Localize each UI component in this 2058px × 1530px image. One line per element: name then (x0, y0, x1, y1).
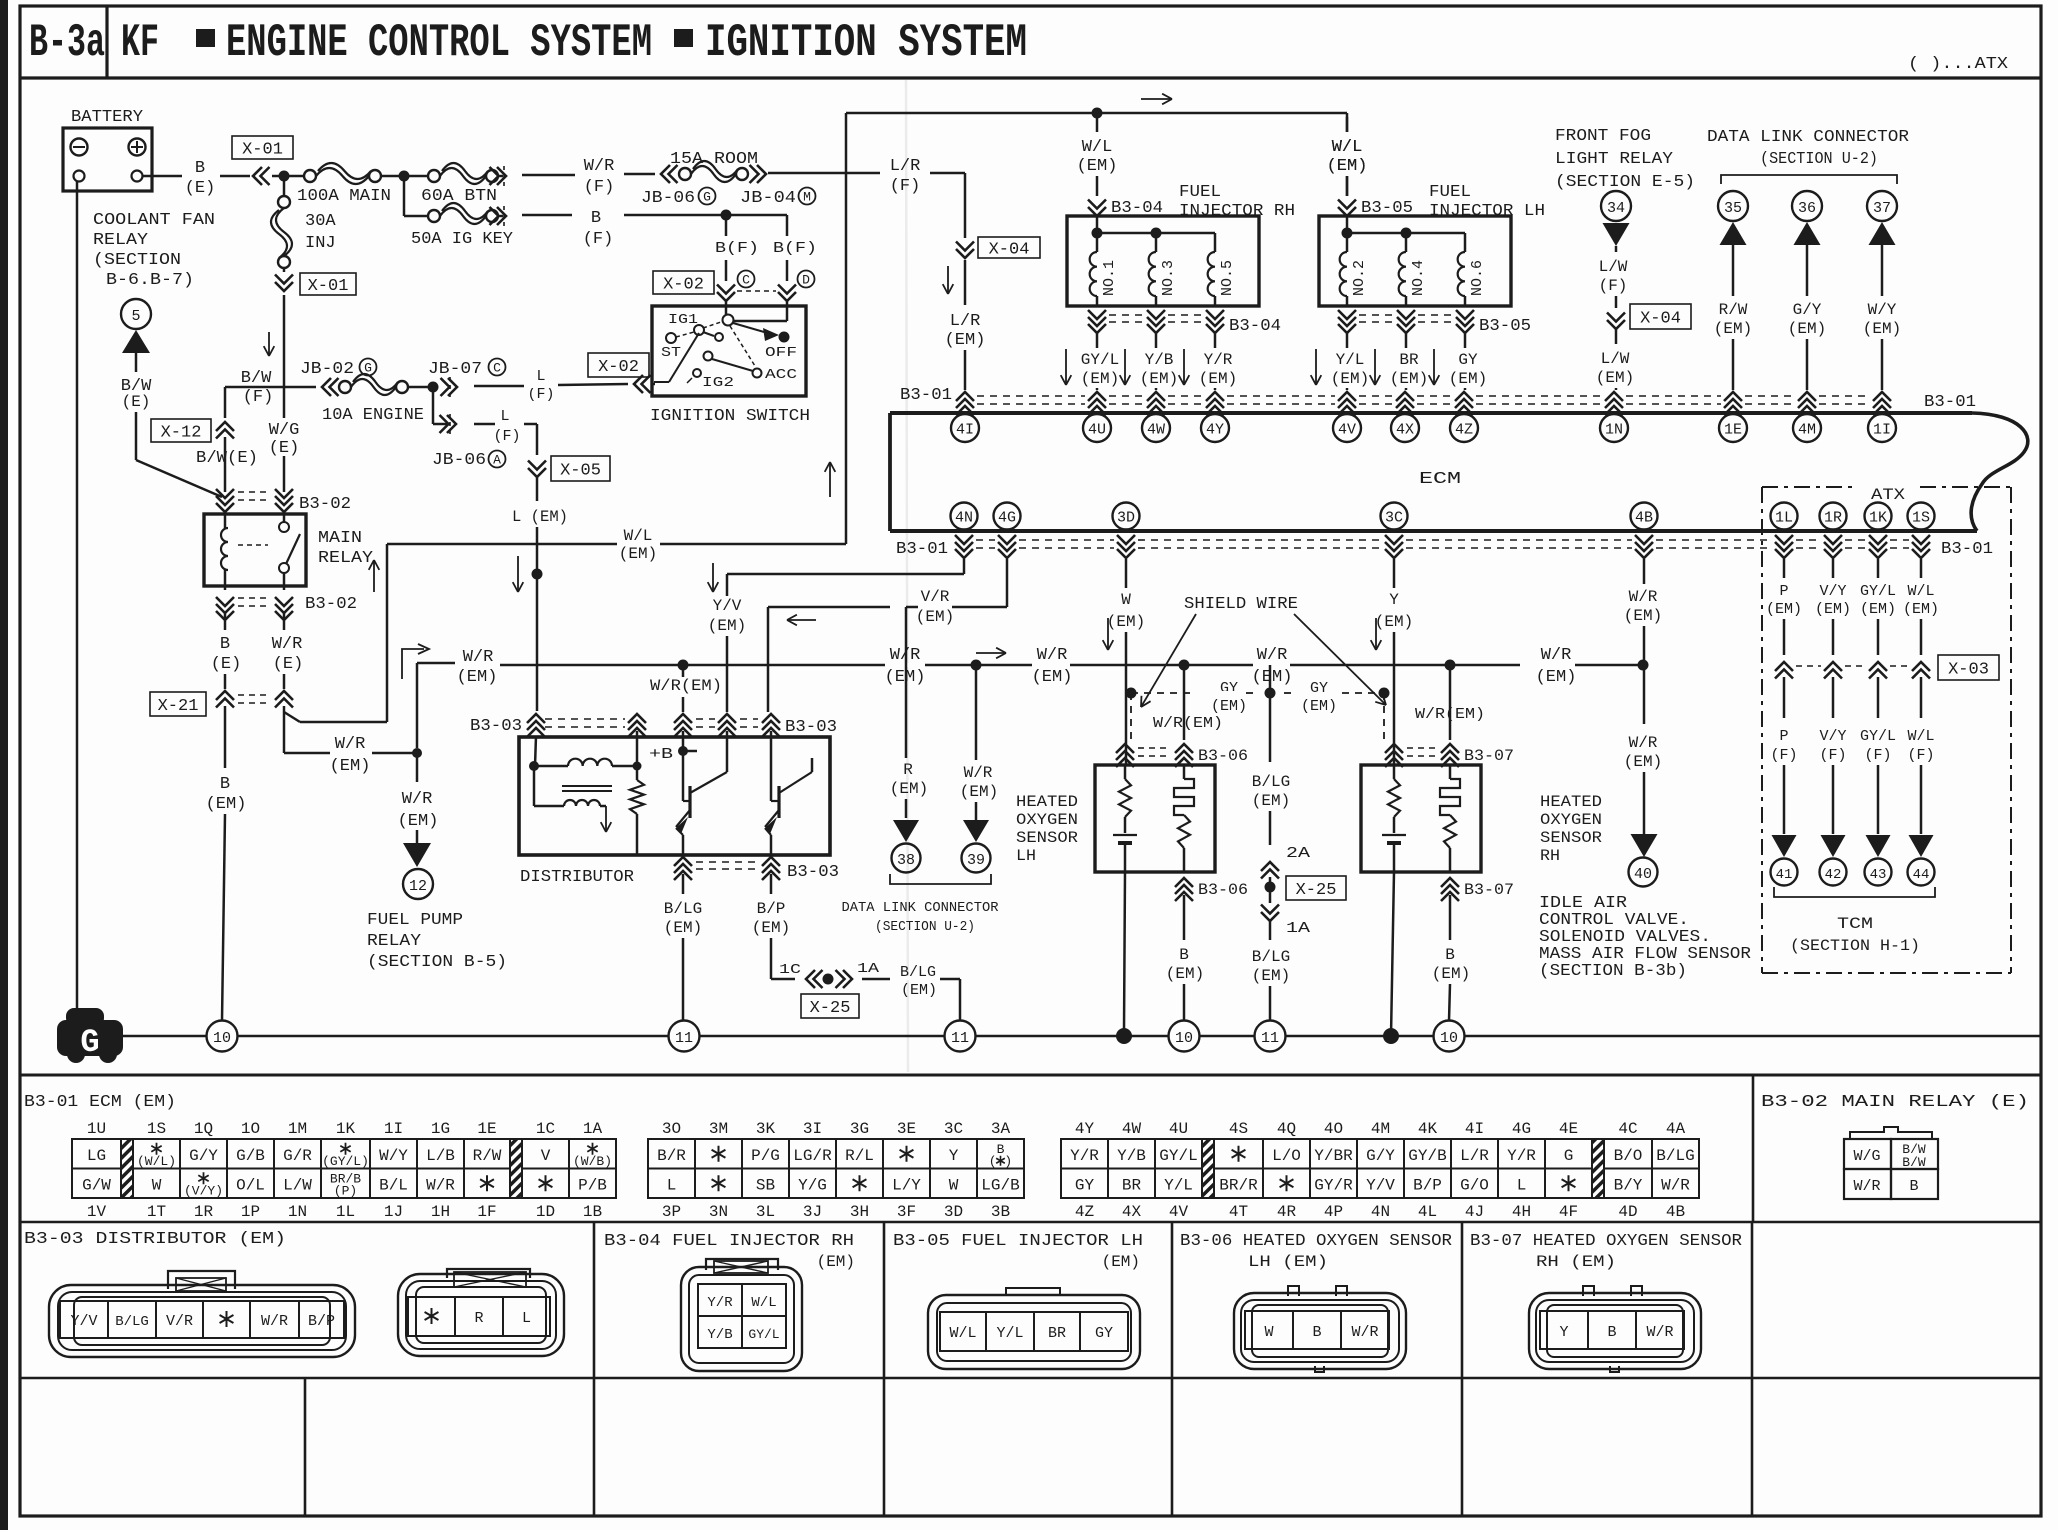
svg-text:B/LG: B/LG (1252, 773, 1290, 791)
svg-text:4E: 4E (1559, 1120, 1578, 1138)
svg-text:B/LG: B/LG (1656, 1147, 1694, 1165)
svg-text:1N: 1N (288, 1203, 307, 1221)
svg-text:3E: 3E (897, 1120, 916, 1138)
svg-text:B3-01: B3-01 (896, 540, 948, 559)
svg-text:(F): (F) (243, 388, 274, 407)
svg-text:(EM): (EM) (1252, 967, 1290, 985)
svg-text:3A: 3A (991, 1120, 1011, 1138)
svg-text:O/L: O/L (236, 1176, 265, 1194)
svg-text:OXYGEN: OXYGEN (1016, 811, 1078, 829)
svg-text:NO.2: NO.2 (1351, 260, 1368, 296)
svg-text:3H: 3H (850, 1203, 869, 1221)
svg-text:Y/V: Y/V (713, 597, 742, 615)
svg-text:B/P: B/P (757, 900, 786, 918)
svg-text:1F: 1F (477, 1203, 496, 1221)
svg-text:B-3a: B-3a (29, 17, 105, 69)
svg-text:DATA LINK CONNECTOR: DATA LINK CONNECTOR (842, 900, 1000, 916)
svg-text:1L: 1L (336, 1203, 355, 1221)
svg-text:SENSOR: SENSOR (1016, 829, 1078, 847)
svg-text:(EM): (EM) (206, 795, 247, 814)
svg-text:(EM): (EM) (960, 783, 998, 801)
svg-text:B3-04: B3-04 (1229, 317, 1281, 336)
svg-text:W/R: W/R (1541, 646, 1572, 665)
svg-text:ST: ST (661, 345, 681, 361)
svg-text:1D: 1D (536, 1203, 555, 1221)
svg-text:B3-06 HEATED OXYGEN SENSOR: B3-06 HEATED OXYGEN SENSOR (1180, 1232, 1452, 1251)
svg-text:NO.5: NO.5 (1219, 260, 1236, 296)
svg-text:L: L (522, 1310, 531, 1327)
svg-text:Y/L: Y/L (1336, 351, 1365, 369)
svg-text:GY/B: GY/B (1408, 1147, 1446, 1165)
svg-text:L/W: L/W (1601, 350, 1630, 368)
svg-text:1Q: 1Q (194, 1120, 213, 1138)
svg-text:1B: 1B (583, 1203, 602, 1221)
svg-text:GY/R: GY/R (1314, 1176, 1353, 1194)
svg-text:(EM): (EM) (1102, 1253, 1140, 1271)
svg-text:1O: 1O (241, 1120, 260, 1138)
svg-text:43: 43 (1870, 867, 1887, 883)
svg-text:3P: 3P (662, 1203, 681, 1221)
svg-text:G/Y: G/Y (189, 1147, 218, 1165)
svg-text:Y/B: Y/B (1145, 351, 1174, 369)
svg-text:4Z: 4Z (1455, 421, 1473, 438)
svg-text:4R: 4R (1277, 1203, 1297, 1221)
svg-text:W/R: W/R (402, 790, 433, 809)
svg-text:(SECTION B-3b): (SECTION B-3b) (1539, 962, 1687, 981)
svg-text:4V: 4V (1169, 1203, 1189, 1221)
svg-text:B3-01: B3-01 (900, 386, 952, 405)
svg-text:X-04: X-04 (989, 241, 1030, 260)
svg-text:W: W (152, 1176, 162, 1194)
svg-text:1I: 1I (1873, 421, 1891, 438)
svg-text:3M: 3M (709, 1120, 728, 1138)
svg-text:B3-02: B3-02 (305, 595, 357, 614)
svg-text:LG/R: LG/R (793, 1147, 832, 1165)
svg-text:B3-02: B3-02 (299, 495, 351, 514)
svg-text:(E): (E) (122, 393, 151, 411)
svg-text:11: 11 (1261, 1030, 1279, 1047)
svg-text:4O: 4O (1324, 1120, 1343, 1138)
svg-text:34: 34 (1607, 200, 1625, 217)
svg-text:DATA LINK CONNECTOR: DATA LINK CONNECTOR (1707, 128, 1909, 147)
svg-text:JB-04: JB-04 (740, 189, 796, 208)
svg-text:4C: 4C (1618, 1120, 1637, 1138)
svg-text:Y/B: Y/B (707, 1327, 732, 1343)
svg-text:10: 10 (213, 1030, 231, 1047)
svg-text:(EM): (EM) (1331, 370, 1369, 388)
svg-text:FUEL PUMP: FUEL PUMP (367, 911, 463, 930)
svg-text:W/R: W/R (1629, 588, 1658, 606)
svg-text:R: R (474, 1310, 483, 1327)
svg-text:G: G (1564, 1147, 1574, 1165)
svg-text:W/L: W/L (624, 527, 653, 545)
svg-text:4I: 4I (956, 421, 974, 438)
svg-text:L: L (667, 1176, 677, 1194)
svg-text:(P): (P) (334, 1183, 357, 1198)
svg-text:W/R: W/R (964, 764, 993, 782)
svg-text:X-05: X-05 (560, 462, 601, 481)
svg-text:W/R: W/R (1351, 1324, 1378, 1341)
svg-text:P: P (1779, 728, 1788, 745)
svg-text:GY/L: GY/L (1860, 583, 1896, 600)
svg-text:(EM): (EM) (1432, 965, 1470, 983)
svg-text:Y/G: Y/G (798, 1176, 827, 1194)
svg-text:(EM): (EM) (1301, 698, 1337, 715)
svg-text:B3-03: B3-03 (787, 863, 839, 882)
svg-text:W/R: W/R (584, 157, 615, 176)
svg-text:W/R: W/R (463, 648, 494, 667)
svg-text:10A ENGINE: 10A ENGINE (322, 406, 424, 425)
svg-text:(EM): (EM) (1107, 613, 1145, 631)
svg-text:RELAY: RELAY (367, 932, 421, 951)
svg-text:3K: 3K (756, 1120, 776, 1138)
svg-text:1E: 1E (477, 1120, 496, 1138)
svg-text:W/R: W/R (1853, 1178, 1880, 1195)
svg-text:50A IG KEY: 50A IG KEY (411, 230, 513, 249)
svg-text:W/L: W/L (1907, 728, 1934, 745)
svg-text:( )...ATX: ( )...ATX (1908, 55, 2008, 74)
svg-text:(EM): (EM) (1252, 792, 1290, 810)
svg-text:(F): (F) (1819, 747, 1846, 764)
svg-text:B/P: B/P (308, 1313, 335, 1330)
svg-text:RELAY: RELAY (93, 231, 148, 250)
svg-text:C: C (493, 361, 501, 376)
svg-text:B/L: B/L (379, 1176, 408, 1194)
svg-text:B3-07: B3-07 (1464, 747, 1514, 765)
svg-text:4D: 4D (1618, 1203, 1637, 1221)
svg-text:4G: 4G (1512, 1120, 1531, 1138)
svg-text:W/L: W/L (1907, 583, 1934, 600)
svg-text:4W: 4W (1122, 1120, 1142, 1138)
svg-text:L (EM): L (EM) (512, 508, 568, 526)
svg-text:W/R: W/R (335, 735, 366, 754)
svg-text:(EM): (EM) (330, 757, 371, 776)
svg-text:(EM): (EM) (1860, 601, 1896, 618)
svg-text:W/R: W/R (1646, 1324, 1673, 1341)
svg-text:(EM): (EM) (1327, 157, 1368, 176)
svg-text:4U: 4U (1169, 1120, 1188, 1138)
svg-text:W/R: W/R (272, 635, 303, 654)
svg-text:GY: GY (1075, 1176, 1095, 1194)
svg-text:GY: GY (1310, 680, 1328, 697)
svg-text:(EM): (EM) (457, 668, 498, 687)
svg-text:GY: GY (1095, 1325, 1113, 1342)
svg-text:A: A (493, 453, 501, 468)
svg-text:1J: 1J (384, 1203, 403, 1221)
svg-text:3N: 3N (709, 1203, 728, 1221)
svg-text:3G: 3G (850, 1120, 869, 1138)
svg-text:NO.1: NO.1 (1101, 260, 1118, 296)
svg-text:4M: 4M (1798, 421, 1816, 438)
svg-text:4I: 4I (1465, 1120, 1484, 1138)
svg-text:B/O: B/O (1614, 1147, 1643, 1165)
svg-text:(EM): (EM) (708, 617, 746, 635)
svg-text:RH: RH (1540, 847, 1560, 865)
svg-text:GY/L: GY/L (1081, 351, 1119, 369)
svg-text:X-03: X-03 (1948, 661, 1989, 680)
svg-text:L/R: L/R (890, 157, 921, 176)
svg-text:W/R: W/R (261, 1313, 288, 1330)
svg-text:1A: 1A (857, 961, 880, 977)
svg-text:G/Y: G/Y (1366, 1147, 1395, 1165)
svg-text:G/R: G/R (283, 1147, 312, 1165)
svg-text:Y/R: Y/R (1070, 1147, 1099, 1165)
svg-text:B3-06: B3-06 (1198, 747, 1248, 765)
svg-text:KF: KF (121, 17, 159, 69)
svg-text:4X: 4X (1122, 1203, 1142, 1221)
svg-text:(E): (E) (269, 439, 300, 458)
svg-text:B: B (1909, 1178, 1918, 1195)
svg-text:Y: Y (1559, 1324, 1568, 1341)
svg-text:W/G: W/G (269, 421, 300, 440)
svg-text:Y/V: Y/V (1366, 1176, 1395, 1194)
svg-text:(W/B): (W/B) (573, 1154, 612, 1169)
svg-text:X-25: X-25 (1296, 881, 1337, 900)
svg-text:B(F): B(F) (715, 240, 759, 257)
svg-text:B3-06: B3-06 (1198, 881, 1248, 899)
svg-text:W: W (1121, 591, 1131, 609)
svg-text:(EM): (EM) (1815, 601, 1851, 618)
svg-text:(F): (F) (583, 230, 614, 249)
svg-text:W: W (949, 1176, 959, 1194)
svg-text:INJ: INJ (305, 234, 336, 253)
svg-text:Y/BR: Y/BR (1314, 1147, 1353, 1165)
svg-text:X-12: X-12 (161, 424, 202, 443)
svg-text:B3-01: B3-01 (1941, 540, 1993, 559)
svg-text:IG2: IG2 (702, 375, 734, 391)
svg-text:P/G: P/G (751, 1147, 780, 1165)
svg-text:37: 37 (1873, 200, 1891, 217)
svg-text:B3-01: B3-01 (1924, 393, 1976, 412)
svg-text:V/Y: V/Y (1819, 583, 1846, 600)
svg-text:4J: 4J (1465, 1203, 1484, 1221)
svg-text:B: B (1607, 1324, 1616, 1341)
svg-text:W/G: W/G (1853, 1148, 1880, 1165)
svg-text:Y: Y (949, 1147, 959, 1165)
svg-text:RH (EM): RH (EM) (1536, 1253, 1616, 1271)
svg-text:(EM): (EM) (890, 780, 928, 798)
svg-text:4Y: 4Y (1206, 421, 1224, 438)
svg-text:B: B (195, 159, 205, 178)
svg-text:LH: LH (1016, 847, 1036, 865)
svg-text:(EM): (EM) (1449, 370, 1487, 388)
svg-text:X-02: X-02 (663, 276, 704, 295)
svg-text:INJECTOR RH: INJECTOR RH (1179, 202, 1295, 221)
svg-text:COOLANT FAN: COOLANT FAN (93, 211, 215, 230)
svg-text:11: 11 (951, 1030, 969, 1047)
svg-text:D: D (802, 273, 810, 288)
svg-text:4B: 4B (1635, 509, 1653, 526)
svg-text:LG/B: LG/B (981, 1176, 1019, 1194)
svg-text:B: B (220, 775, 230, 794)
svg-text:W/R: W/R (1661, 1176, 1690, 1194)
svg-text:B/LG: B/LG (115, 1314, 149, 1330)
svg-text:1K: 1K (1869, 509, 1887, 526)
svg-text:BR: BR (1122, 1176, 1142, 1194)
svg-text:IGNITION SWITCH: IGNITION SWITCH (650, 407, 810, 426)
svg-text:ATX: ATX (1871, 486, 1905, 504)
svg-text:39: 39 (967, 852, 985, 869)
svg-text:L: L (500, 408, 509, 425)
svg-text:(EM): (EM) (1140, 370, 1178, 388)
svg-text:(EM): (EM) (1252, 668, 1293, 687)
svg-text:1U: 1U (87, 1120, 106, 1138)
svg-text:B/LG: B/LG (1252, 948, 1290, 966)
svg-text:(EM): (EM) (1077, 157, 1118, 176)
svg-text:W/R: W/R (426, 1176, 455, 1194)
svg-text:W/L: W/L (751, 1295, 776, 1311)
svg-text:(SECTION U-2): (SECTION U-2) (1760, 150, 1878, 169)
svg-text:R/W: R/W (473, 1147, 502, 1165)
svg-text:R/W: R/W (1719, 301, 1748, 319)
svg-text:B: B (220, 635, 230, 654)
svg-text:B3-04 FUEL INJECTOR RH: B3-04 FUEL INJECTOR RH (604, 1232, 854, 1251)
svg-text:FUEL: FUEL (1179, 183, 1221, 202)
svg-text:(E): (E) (211, 655, 242, 674)
svg-text:R: R (903, 761, 913, 779)
svg-text:3F: 3F (897, 1203, 916, 1221)
svg-text:GY/L: GY/L (748, 1327, 779, 1342)
svg-text:Y/R: Y/R (1204, 351, 1233, 369)
svg-text:B/W: B/W (1902, 1155, 1926, 1170)
svg-text:W/Y: W/Y (379, 1147, 408, 1165)
svg-text:4X: 4X (1396, 421, 1414, 438)
svg-text:(F): (F) (1907, 747, 1934, 764)
svg-text:L/W: L/W (283, 1176, 312, 1194)
svg-text:(E): (E) (185, 179, 216, 198)
svg-text:LH (EM): LH (EM) (1248, 1253, 1328, 1271)
svg-text:3B: 3B (991, 1203, 1010, 1221)
svg-text:(EM): (EM) (1766, 601, 1802, 618)
svg-text:(EM): (EM) (916, 608, 954, 626)
svg-text:(F): (F) (890, 177, 921, 196)
svg-text:(EM): (EM) (817, 1253, 855, 1271)
svg-text:X-01: X-01 (242, 141, 283, 160)
svg-text:L: L (536, 368, 545, 385)
svg-text:Y/R: Y/R (1507, 1147, 1536, 1165)
svg-text:41: 41 (1776, 867, 1793, 883)
svg-text:W/L: W/L (1082, 138, 1113, 157)
svg-text:4Z: 4Z (1075, 1203, 1095, 1221)
svg-text:LIGHT RELAY: LIGHT RELAY (1555, 150, 1673, 169)
svg-text:W/R: W/R (1629, 734, 1658, 752)
svg-text:4H: 4H (1512, 1203, 1531, 1221)
svg-text:1L: 1L (1775, 509, 1793, 526)
svg-text:OXYGEN: OXYGEN (1540, 811, 1602, 829)
svg-text:L/O: L/O (1272, 1147, 1301, 1165)
svg-text:3D: 3D (1117, 509, 1135, 526)
svg-text:B/W: B/W (241, 369, 272, 388)
svg-text:4S: 4S (1229, 1120, 1248, 1138)
svg-text:L/Y: L/Y (892, 1176, 921, 1194)
svg-text:1G: 1G (431, 1120, 450, 1138)
svg-text:1N: 1N (1605, 421, 1623, 438)
svg-text:JB-06: JB-06 (641, 189, 695, 208)
svg-text:TCM: TCM (1837, 915, 1873, 933)
svg-text:IGNITION SYSTEM: IGNITION SYSTEM (705, 17, 1027, 69)
svg-text:35: 35 (1724, 200, 1742, 217)
svg-text:B/Y: B/Y (1614, 1176, 1643, 1194)
svg-text:1M: 1M (288, 1120, 307, 1138)
svg-text:3I: 3I (803, 1120, 822, 1138)
svg-text:G/O: G/O (1460, 1176, 1489, 1194)
svg-text:4T: 4T (1229, 1203, 1248, 1221)
svg-text:INJECTOR LH: INJECTOR LH (1429, 202, 1545, 221)
svg-text:(SECTION: (SECTION (93, 251, 181, 270)
svg-text:W/R: W/R (1257, 646, 1288, 665)
svg-text:1S: 1S (1912, 509, 1930, 526)
svg-text:JB-02: JB-02 (300, 360, 354, 379)
svg-text:4P: 4P (1324, 1203, 1343, 1221)
svg-text:X-21: X-21 (158, 697, 199, 716)
svg-text:B3-03: B3-03 (785, 718, 837, 737)
svg-text:(SECTION E-5): (SECTION E-5) (1555, 173, 1695, 192)
svg-text:Y/V: Y/V (70, 1313, 97, 1330)
svg-text:1T: 1T (147, 1203, 166, 1221)
svg-text:(EM): (EM) (1714, 320, 1752, 338)
svg-text:4Y: 4Y (1075, 1120, 1095, 1138)
svg-text:X-01: X-01 (308, 277, 349, 296)
svg-text:4V: 4V (1338, 421, 1356, 438)
svg-text:1R: 1R (1824, 509, 1842, 526)
svg-text:X-02: X-02 (598, 358, 639, 377)
svg-text:L/R: L/R (1460, 1147, 1489, 1165)
svg-text:4K: 4K (1418, 1120, 1438, 1138)
svg-text:JB-07: JB-07 (428, 360, 482, 379)
svg-text:(EM): (EM) (1624, 753, 1662, 771)
svg-text:Y/B: Y/B (1117, 1147, 1146, 1165)
svg-text:(EM): (EM) (1536, 668, 1577, 687)
svg-text:V/R: V/R (921, 588, 950, 606)
svg-text:4A: 4A (1666, 1120, 1686, 1138)
svg-text:V/R: V/R (166, 1313, 193, 1330)
svg-text:3D: 3D (944, 1203, 963, 1221)
svg-text:M: M (803, 190, 811, 205)
svg-text:G/W: G/W (82, 1176, 111, 1194)
svg-text:B: B (591, 209, 601, 228)
svg-text:P: P (1779, 583, 1788, 600)
svg-text:(F): (F) (1770, 747, 1797, 764)
svg-text:4G: 4G (998, 509, 1016, 526)
svg-text:(SECTION U-2): (SECTION U-2) (875, 919, 975, 935)
svg-text:ACC: ACC (765, 367, 797, 383)
svg-text:1A: 1A (1286, 920, 1310, 937)
svg-text:BR: BR (1048, 1325, 1066, 1342)
svg-text:W/R(EM): W/R(EM) (1153, 715, 1223, 732)
svg-text:B: B (1445, 946, 1455, 964)
svg-text:W: W (1264, 1324, 1273, 1341)
svg-text:1V: 1V (87, 1203, 107, 1221)
svg-text:(EM): (EM) (1596, 369, 1634, 387)
svg-text:NO.4: NO.4 (1410, 260, 1427, 296)
svg-text:MAIN: MAIN (318, 529, 362, 548)
svg-text:(EM): (EM) (1375, 613, 1413, 631)
svg-text:(SECTION B-5): (SECTION B-5) (367, 953, 507, 972)
svg-text:(EM): (EM) (1032, 668, 1073, 687)
svg-text:(F): (F) (493, 428, 520, 445)
svg-text:B3-03 DISTRIBUTOR (EM): B3-03 DISTRIBUTOR (EM) (24, 1230, 286, 1249)
svg-text:(GY/L): (GY/L) (322, 1154, 369, 1169)
svg-text:(EM): (EM) (1624, 607, 1662, 625)
svg-text:B3-01 ECM (EM): B3-01 ECM (EM) (24, 1093, 176, 1112)
svg-text:B3-05 FUEL INJECTOR LH: B3-05 FUEL INJECTOR LH (893, 1232, 1143, 1251)
svg-text:30A: 30A (305, 212, 336, 231)
svg-text:(EM): (EM) (1390, 370, 1428, 388)
svg-text:1S: 1S (147, 1120, 166, 1138)
svg-text:1P: 1P (241, 1203, 260, 1221)
svg-text:3C: 3C (1385, 509, 1403, 526)
svg-text:FRONT FOG: FRONT FOG (1555, 127, 1651, 146)
